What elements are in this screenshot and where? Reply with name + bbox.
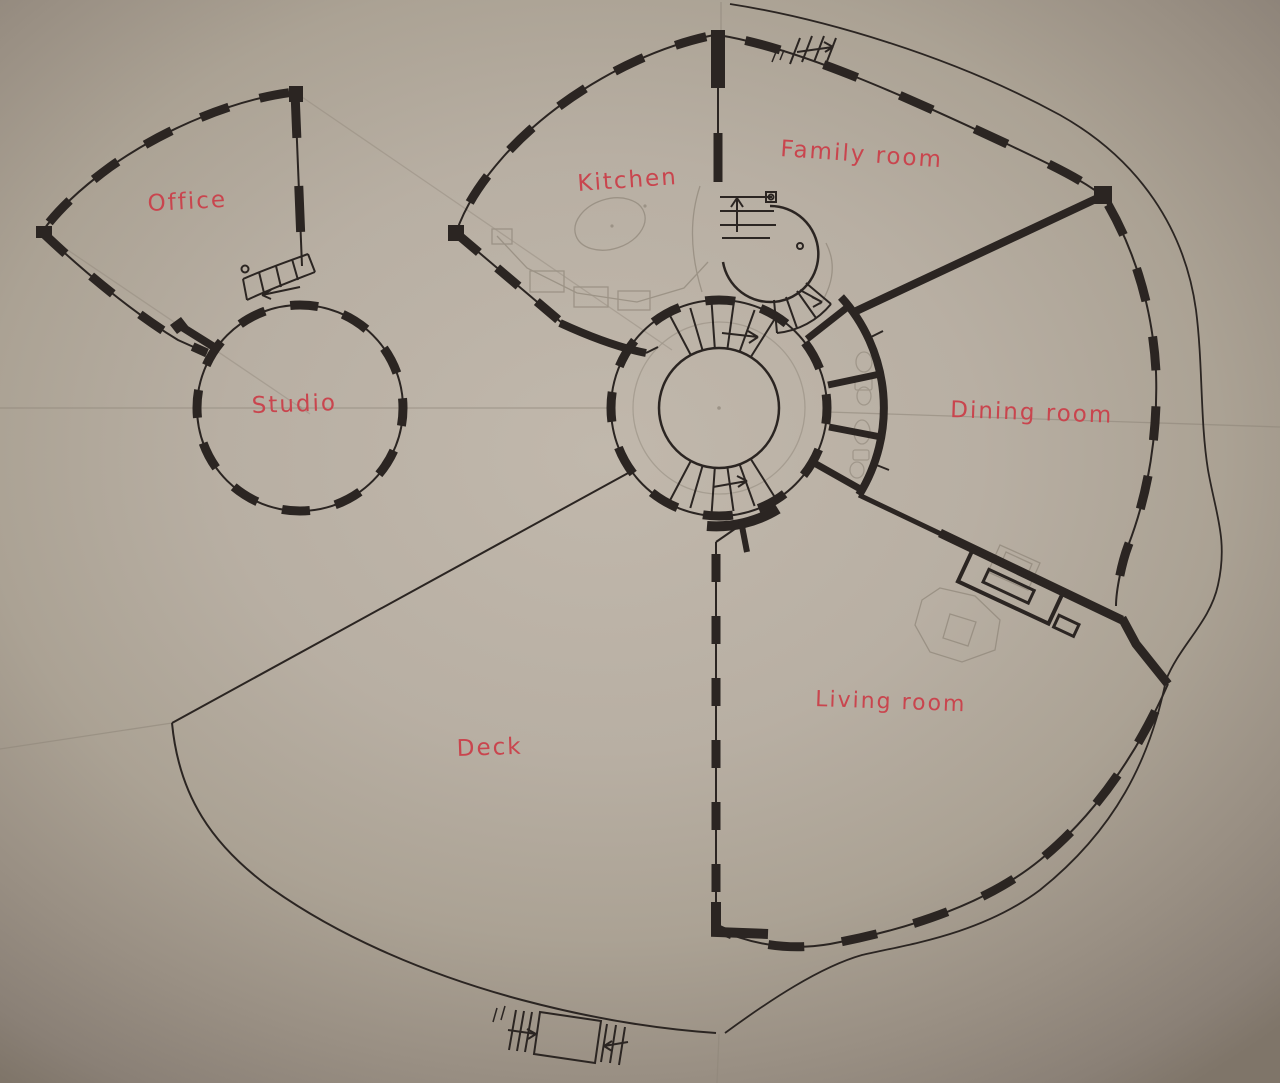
deck-stairs (493, 1006, 628, 1065)
room-label-office: Office (147, 187, 228, 217)
room-label-family-room: Family room (780, 136, 944, 173)
room-label-studio: Studio (251, 390, 337, 419)
stair-direction-arrow-up (722, 331, 758, 343)
room-label-living-room: Living room (815, 687, 967, 717)
family-room-stair (720, 192, 831, 333)
corridor-spoke-3 (829, 427, 881, 437)
pencil-layer (0, 2, 1280, 1083)
ink-layer (36, 4, 1222, 1065)
bathroom-fixtures (850, 352, 872, 478)
floor-plan-photo: Office Studio Kitchen Family room Dining… (0, 0, 1280, 1083)
living-corner-wall (716, 902, 768, 934)
living-room-outer-wall (716, 684, 1168, 947)
corridor-spoke-1 (807, 306, 849, 339)
central-spiral-stair (670, 304, 774, 512)
construction-axis-lines (0, 2, 1280, 1083)
room-label-dining-room: Dining room (950, 397, 1114, 429)
floor-plan-drawing: Office Studio Kitchen Family room Dining… (0, 0, 1280, 1083)
deck-outline (172, 472, 716, 1033)
office-studio-stair (242, 254, 316, 300)
family-dining-partition (852, 197, 1100, 313)
sight-guide-lines (44, 97, 672, 414)
kitchen-island (568, 189, 652, 259)
corridor-fireplace-link (859, 495, 941, 534)
kitchen-top-wall (456, 35, 714, 233)
kitchen-counters (492, 229, 708, 310)
corridor-spoke-4 (816, 464, 862, 490)
kitchen-tower-swoosh (560, 323, 646, 353)
dining-living-corner (1122, 618, 1168, 684)
fireplace-pencil-outline (915, 545, 1040, 662)
room-labels: Office Studio Kitchen Family room Dining… (147, 136, 1114, 762)
room-label-kitchen: Kitchen (577, 164, 679, 197)
room-label-deck: Deck (456, 734, 523, 762)
family-room-top-wall (718, 35, 1103, 196)
